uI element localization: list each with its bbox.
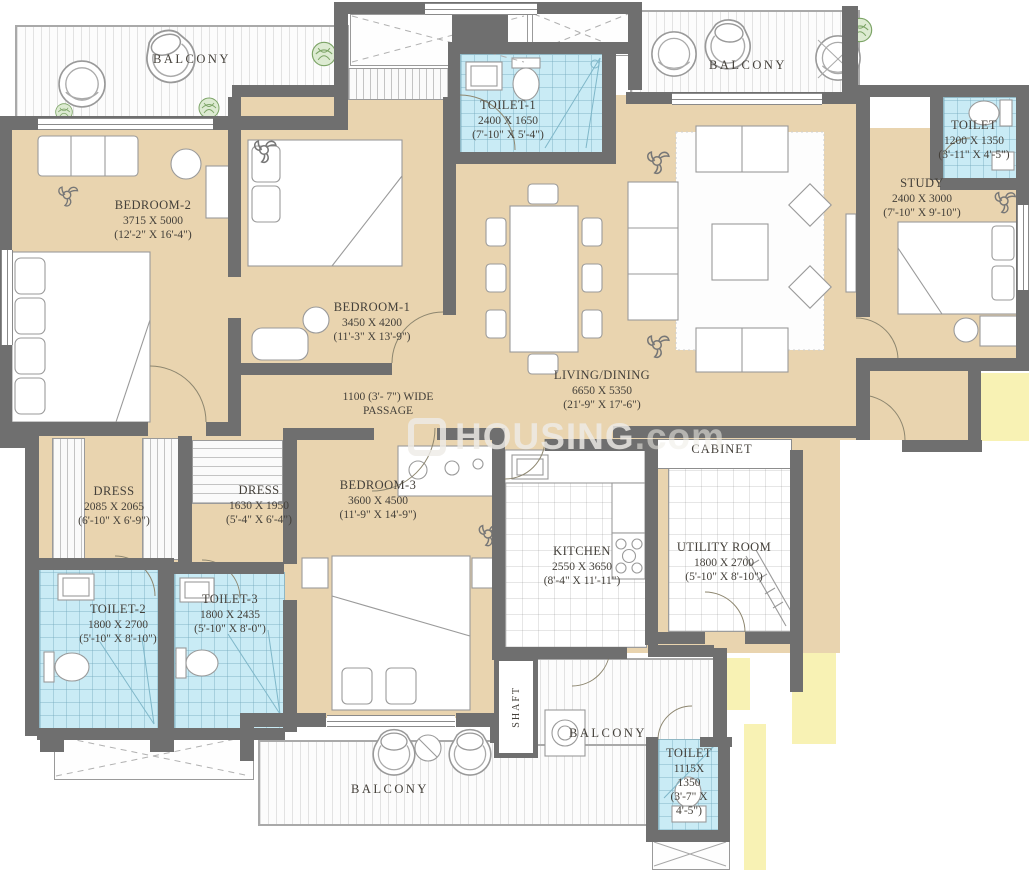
label-kitchen: KITCHEN2550 X 3650(8'-4" X 11'-11") [544, 544, 621, 588]
label-living-dining: LIVING/DINING6650 X 5350(21'-9" X 17'-6"… [554, 368, 650, 412]
label-balcony-top-left: BALCONY [153, 52, 231, 68]
label-dress-2: DRESS1630 X 1950(5'-4" X 6'-4") [226, 483, 292, 527]
label-study: STUDY2400 X 3000(7'-10" X 9'-10") [883, 176, 960, 220]
label-dress-1: DRESS2085 X 2065(6'-10" X 6'-9") [78, 484, 150, 528]
window [38, 118, 213, 130]
label-passage: 1100 (3'- 7") WIDEPASSAGE [343, 390, 434, 419]
label-toilet-1: TOILET-12400 X 1650(7'-10" X 5'-4") [472, 98, 544, 142]
housing-logo-icon [408, 418, 446, 456]
watermark-text: HOUSING [455, 416, 635, 458]
label-toilet-bottom: TOILET 1115X1350 (3'-7" X4'-5") [666, 746, 712, 819]
window [1, 250, 13, 345]
floor-plan: SHAFT BALCONY BALCONY BALCONY BALCONY BE… [0, 0, 1029, 870]
label-bedroom-1: BEDROOM-13450 X 4200(11'-3" X 13'-9") [334, 300, 411, 344]
label-toilet-top-right: TOILET1200 X 1350(3'-11" X 4'-5") [938, 118, 1009, 162]
label-toilet-2: TOILET-21800 X 2700(5'-10" X 8'-10") [79, 602, 156, 646]
label-toilet-3: TOILET-31800 X 2435(5'-10" X 8'-0") [194, 592, 266, 636]
label-balcony-bottom: BALCONY [351, 782, 429, 798]
label-balcony-top-right: BALCONY [709, 58, 787, 74]
shaft-box: SHAFT [494, 656, 538, 758]
label-bedroom-2: BEDROOM-23715 X 5000(12'-2" X 16'-4") [114, 198, 191, 242]
window [327, 715, 455, 727]
window [425, 3, 537, 15]
label-utility: UTILITY ROOM1800 X 2700(5'-10" X 8'-10") [677, 540, 771, 584]
label-bedroom-3: BEDROOM-33600 X 4500(11'-9" X 14'-9") [340, 478, 417, 522]
window [672, 93, 822, 105]
window [1017, 205, 1029, 290]
shaft-label: SHAFT [511, 686, 522, 728]
label-balcony-bottom-middle: BALCONY [569, 726, 647, 742]
housing-watermark: HOUSING.com [408, 416, 725, 458]
